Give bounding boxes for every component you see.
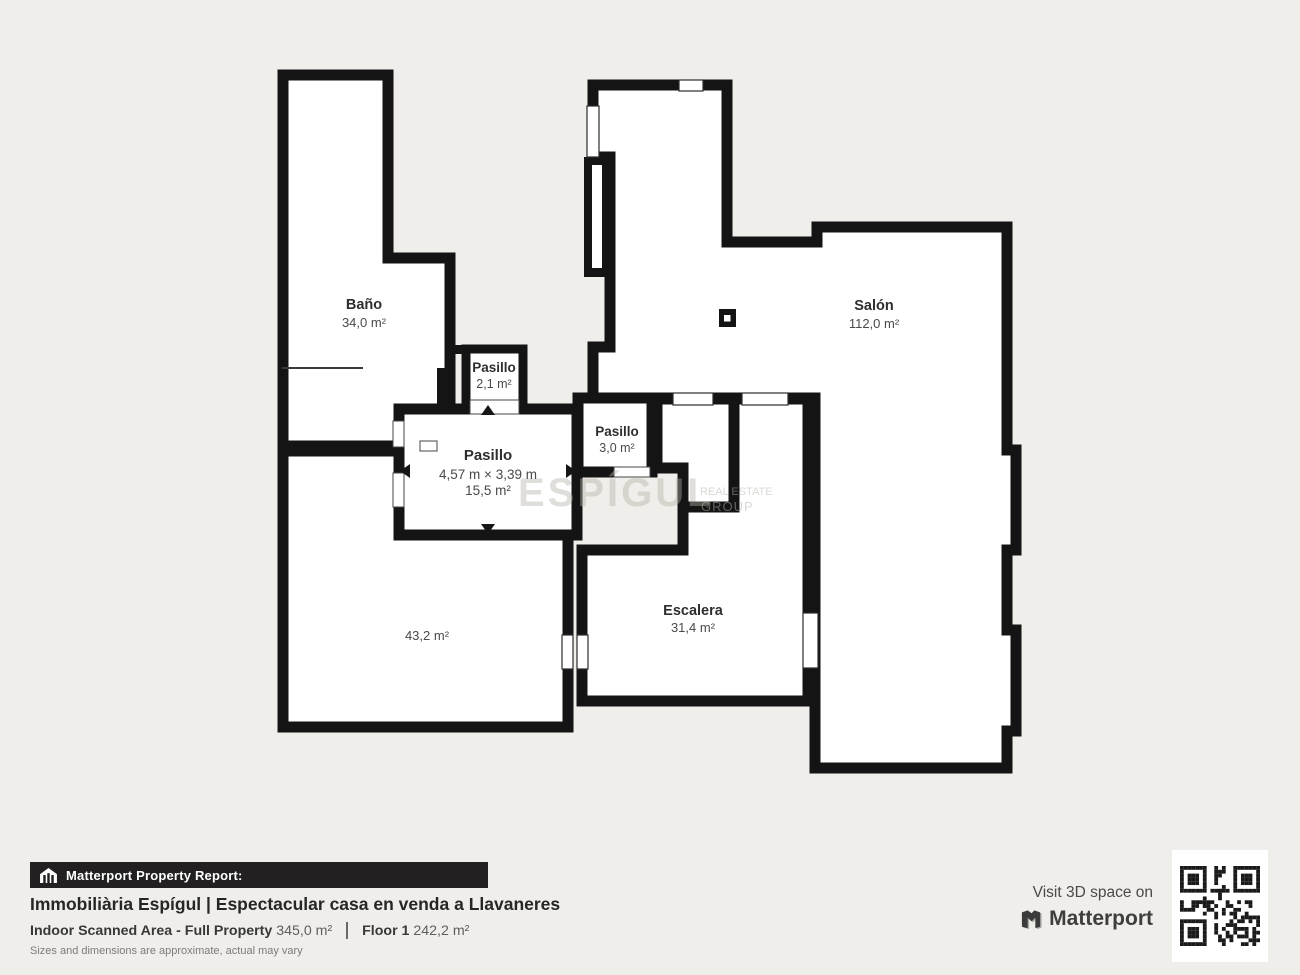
window: [673, 393, 713, 405]
report-badge-label: Matterport Property Report:: [66, 868, 243, 883]
room-area-pasillo-21: 2,1 m²: [476, 377, 511, 391]
matterport-m-icon: [1020, 908, 1043, 931]
report-stats: Indoor Scanned Area - Full Property 345,…: [30, 922, 469, 939]
divider: [346, 922, 348, 939]
door-opening: [470, 400, 519, 414]
property-report-icon: [40, 868, 57, 883]
svg-text:REAL ESTATE: REAL ESTATE: [700, 486, 773, 498]
matterport-wordmark: Matterport: [1049, 907, 1153, 931]
room-label-pasillo-main: Pasillo: [464, 447, 512, 464]
report-disclaimer: Sizes and dimensions are approximate, ac…: [30, 945, 303, 957]
room-label-salon: Salón: [854, 298, 893, 314]
room-dimensions-pasillo-main: 4,57 m × 3,39 m: [439, 467, 537, 482]
room-area-43: 43,2 m²: [405, 628, 450, 643]
room-area-pasillo-main: 15,5 m²: [465, 483, 511, 498]
window: [803, 613, 818, 668]
qr-code: [1180, 866, 1260, 946]
floor-plan: ESPÍGUL REAL ESTATE GROUP Baño 34,0 m² S…: [0, 0, 1300, 975]
window: [577, 635, 588, 669]
room-area-escalera: 31,4 m²: [671, 620, 716, 635]
room-label-escalera: Escalera: [663, 603, 724, 619]
matterport-logo: Matterport: [1020, 907, 1153, 931]
room-area-salon: 112,0 m²: [849, 316, 900, 331]
door-opening: [420, 441, 437, 451]
room-label-pasillo-21: Pasillo: [472, 360, 516, 375]
room-area-pasillo-30: 3,0 m²: [599, 441, 634, 455]
window: [679, 80, 703, 91]
visit-3d-cta: Visit 3D space on Matterport: [1020, 884, 1153, 931]
floor-label: Floor 1: [362, 923, 409, 939]
floor-area-value: 242,2 m²: [413, 923, 469, 939]
qr-code-card: [1172, 850, 1268, 962]
window: [562, 635, 573, 669]
report-title: Immobiliària Espígul | Espectacular casa…: [30, 894, 560, 915]
indoor-area-label: Indoor Scanned Area - Full Property: [30, 923, 272, 939]
svg-text:GROUP: GROUP: [701, 499, 754, 514]
svg-text:ESPÍGUL: ESPÍGUL: [518, 470, 715, 515]
indoor-area-value: 345,0 m²: [276, 923, 332, 939]
room-label-pasillo-30: Pasillo: [595, 424, 639, 439]
report-badge-bar: Matterport Property Report:: [30, 862, 488, 888]
room-bano-shape: [283, 75, 450, 446]
window: [587, 106, 599, 157]
door-opening: [393, 473, 404, 507]
door-jamb: [437, 368, 447, 406]
door-opening: [393, 421, 404, 447]
matterport-floor-plan-report: { "plan": { "rooms": [ {"name": "Baño", …: [0, 0, 1300, 975]
room-area-bano: 34,0 m²: [342, 315, 387, 330]
window: [742, 393, 788, 405]
room-label-bano: Baño: [346, 297, 382, 313]
visit-3d-text: Visit 3D space on: [1020, 884, 1153, 902]
